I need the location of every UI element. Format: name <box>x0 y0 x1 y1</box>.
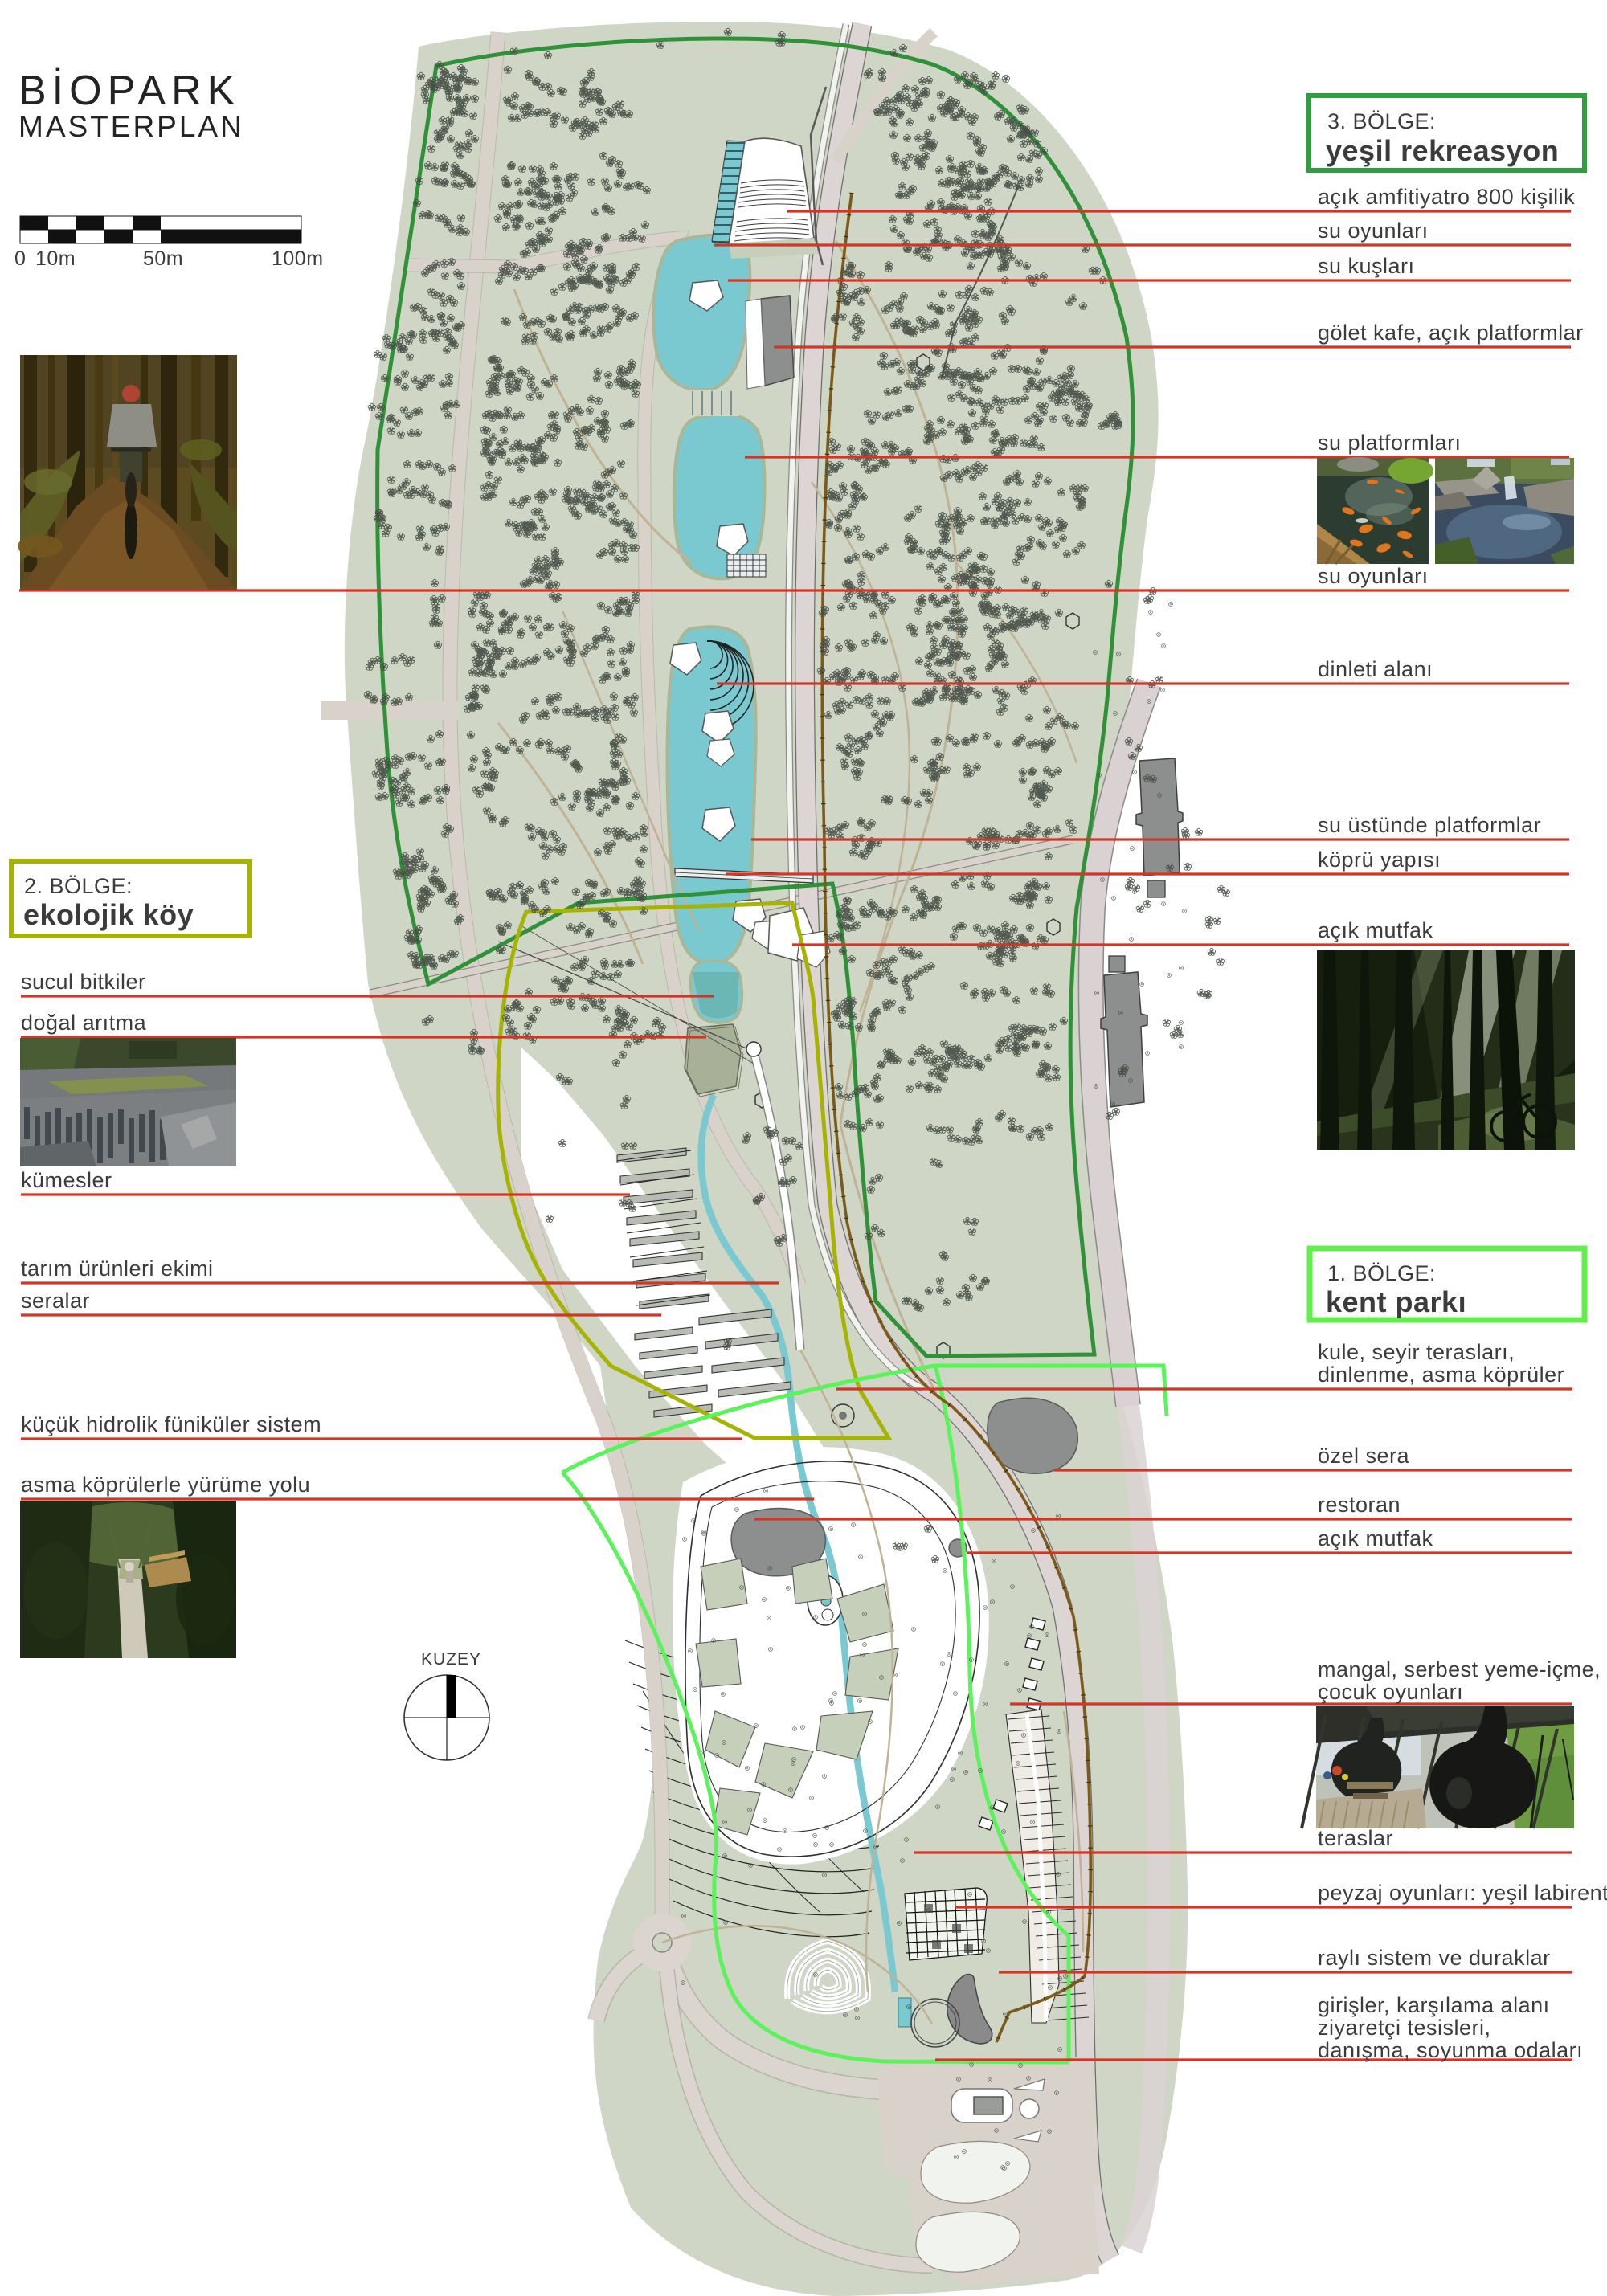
svg-text:su oyunları: su oyunları <box>1318 219 1429 243</box>
svg-text:50m: 50m <box>143 247 183 270</box>
svg-text:açık amfitiyatro 800 kişilik: açık amfitiyatro 800 kişilik <box>1318 185 1575 209</box>
svg-text:10m: 10m <box>35 247 76 270</box>
svg-text:köprü yapısı: köprü yapısı <box>1318 848 1441 872</box>
svg-text:kent parkı: kent parkı <box>1326 1285 1466 1318</box>
svg-text:çocuk oyunları: çocuk oyunları <box>1318 1680 1463 1704</box>
svg-text:su kuşları: su kuşları <box>1318 254 1415 278</box>
svg-text:su üstünde platformlar: su üstünde platformlar <box>1318 813 1541 837</box>
svg-text:asma köprülerle yürüme yolu: asma köprülerle yürüme yolu <box>21 1473 310 1497</box>
svg-text:ziyaretçi tesisleri,: ziyaretçi tesisleri, <box>1318 2016 1491 2040</box>
svg-text:kümesler: kümesler <box>21 1168 112 1192</box>
svg-text:BİOPARK: BİOPARK <box>18 67 240 114</box>
svg-text:danışma, soyunma odaları: danışma, soyunma odaları <box>1318 2038 1583 2062</box>
svg-text:3. BÖLGE:: 3. BÖLGE: <box>1327 109 1436 133</box>
svg-text:100m: 100m <box>272 247 324 270</box>
svg-text:doğal arıtma: doğal arıtma <box>21 1011 147 1035</box>
svg-text:su platformları: su platformları <box>1318 431 1462 455</box>
svg-text:mangal, serbest yeme-içme,: mangal, serbest yeme-içme, <box>1318 1657 1601 1681</box>
svg-text:2. BÖLGE:: 2. BÖLGE: <box>24 874 133 898</box>
svg-text:gölet kafe, açık platformlar: gölet kafe, açık platformlar <box>1318 321 1584 345</box>
svg-text:MASTERPLAN: MASTERPLAN <box>18 110 244 143</box>
svg-text:dinlenme, asma köprüler: dinlenme, asma köprüler <box>1318 1362 1564 1387</box>
svg-text:yeşil rekreasyon: yeşil rekreasyon <box>1326 134 1559 167</box>
svg-text:teraslar: teraslar <box>1318 1826 1393 1850</box>
svg-text:açık mutfak: açık mutfak <box>1318 918 1433 942</box>
svg-text:restoran: restoran <box>1318 1493 1401 1517</box>
svg-text:0: 0 <box>14 247 26 270</box>
svg-text:özel sera: özel sera <box>1318 1444 1410 1468</box>
svg-text:kule, seyir terasları,: kule, seyir terasları, <box>1318 1340 1515 1364</box>
svg-text:dinleti alanı: dinleti alanı <box>1318 657 1433 681</box>
svg-text:girişler, karşılama alanı: girişler, karşılama alanı <box>1318 1993 1550 2017</box>
svg-text:1. BÖLGE:: 1. BÖLGE: <box>1327 1261 1436 1285</box>
svg-text:küçük hidrolik füniküler siste: küçük hidrolik füniküler sistem <box>21 1412 321 1436</box>
svg-text:ekolojik köy: ekolojik köy <box>23 898 194 931</box>
svg-text:seralar: seralar <box>21 1289 90 1313</box>
svg-text:tarım ürünleri ekimi: tarım ürünleri ekimi <box>21 1256 214 1281</box>
svg-text:sucul bitkiler: sucul bitkiler <box>21 970 146 994</box>
svg-text:raylı sistem ve duraklar: raylı sistem ve duraklar <box>1318 1946 1551 1970</box>
svg-text:peyzaj oyunları: yeşil labiren: peyzaj oyunları: yeşil labirent <box>1318 1881 1607 1905</box>
svg-text:KUZEY: KUZEY <box>421 1650 481 1669</box>
svg-text:su oyunları: su oyunları <box>1318 564 1429 588</box>
svg-text:açık mutfak: açık mutfak <box>1318 1526 1433 1550</box>
